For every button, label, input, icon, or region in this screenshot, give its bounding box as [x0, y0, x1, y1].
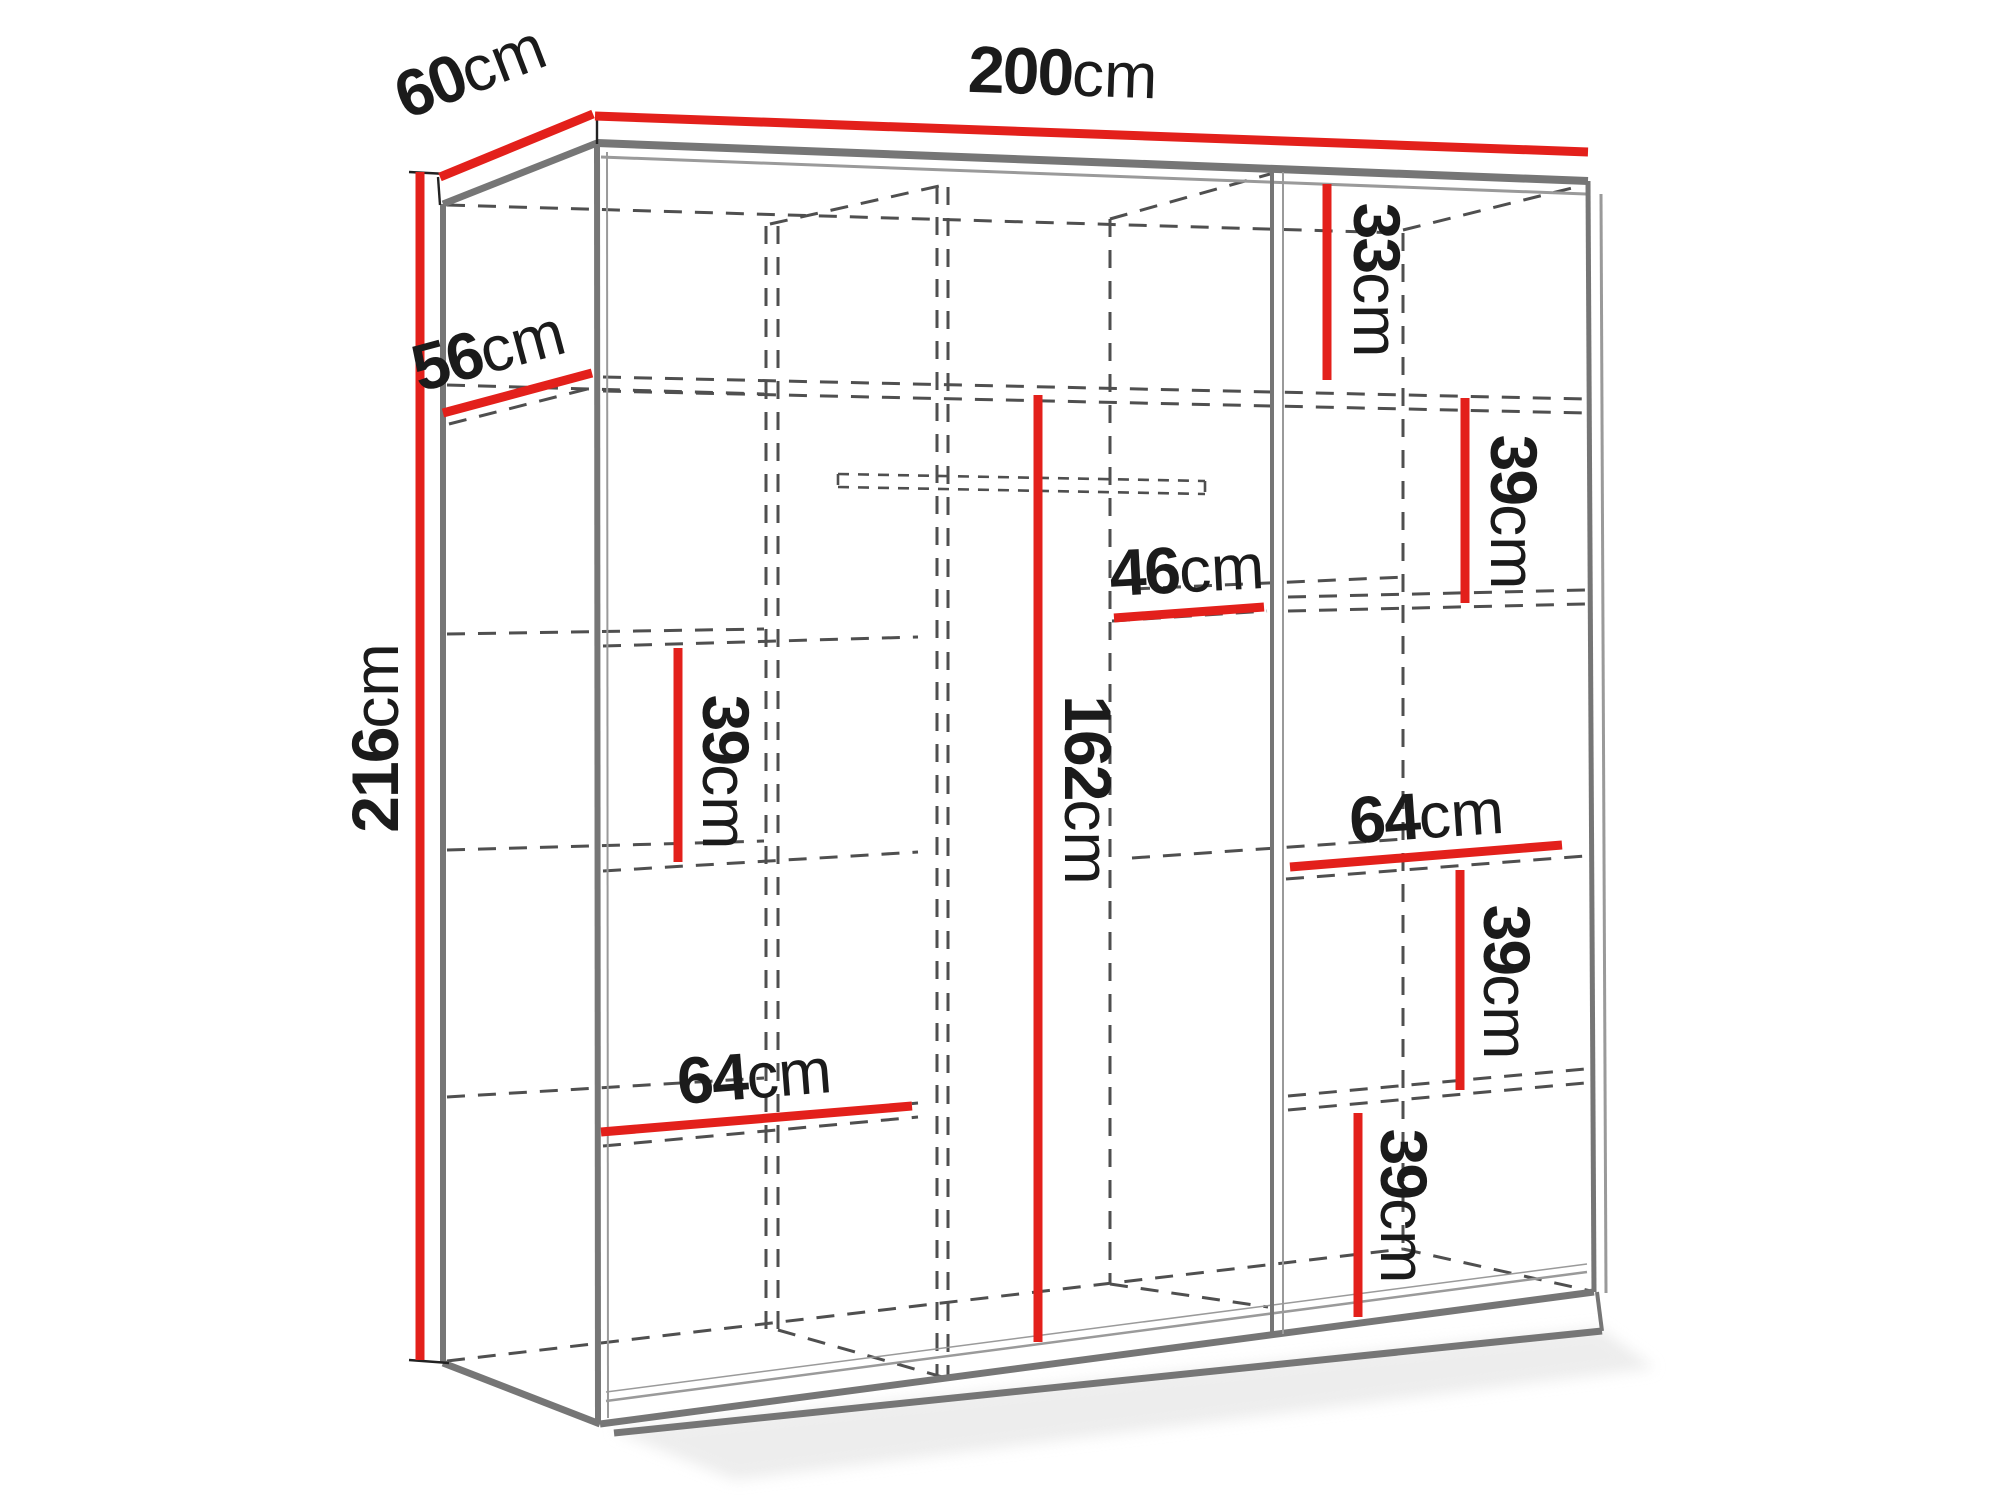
front-right-vertical-edge — [1588, 181, 1594, 1292]
left-partition-bottom-depth — [778, 1330, 946, 1378]
diagram-canvas: 200cm 60cm 216cm 56cm 39cm 64cm 162cm 46… — [0, 0, 2000, 1500]
right-shelf-b-front-1 — [1288, 590, 1585, 597]
mid-partition-bottom-depth — [1110, 1284, 1268, 1307]
left-shelf3-front — [603, 852, 918, 871]
left-shelf2-front — [603, 637, 918, 646]
dim-label-left-shelf: 64cm — [674, 1032, 834, 1118]
top-left-depth-edge — [443, 143, 597, 204]
left-shelf2-back — [447, 629, 764, 634]
back-top-edge — [447, 205, 1403, 233]
front-right-outer-edge — [1601, 194, 1606, 1293]
top-shelf-front-2 — [603, 391, 1585, 413]
dim-label-hanging-width: 46cm — [1108, 528, 1266, 610]
right-shelf-b-front-2 — [1288, 604, 1585, 611]
wardrobe-dimension-diagram: 200cm 60cm 216cm 56cm 39cm 64cm 162cm 46… — [0, 0, 2000, 1500]
front-left-vertical-edge — [597, 143, 598, 1424]
dim-label-hanging-height: 162cm — [1051, 695, 1125, 884]
left-bottom-depth-edge — [443, 1363, 600, 1424]
hanging-rail — [838, 474, 1205, 494]
dimension-ticks — [409, 114, 597, 1363]
dim-label-right-gap-upper: 39cm — [1477, 435, 1551, 590]
dim-label-right-gap-mid: 39cm — [1470, 905, 1544, 1060]
dim-label-right-top-gap: 33cm — [1340, 203, 1414, 358]
right-shelf-d-front-2 — [1288, 1083, 1585, 1110]
dim-label-width: 200cm — [967, 32, 1159, 113]
dim-label-right-gap-low: 39cm — [1367, 1129, 1441, 1284]
back-bottom-edge — [447, 1249, 1403, 1361]
dim-label-right-shelf: 64cm — [1347, 773, 1507, 858]
plinth-right-edge — [1597, 1292, 1602, 1331]
top-shelf-back — [447, 385, 764, 394]
dim-line-depth-60 — [440, 114, 593, 177]
front-left-inner-edge — [607, 152, 608, 1418]
top-shelf-front-1 — [603, 377, 1585, 399]
dim-label-left-gap: 39cm — [689, 695, 763, 850]
dim-label-depth: 60cm — [384, 8, 555, 133]
right-shelf-d-front-1 — [1288, 1069, 1585, 1096]
dim-label-height: 216cm — [338, 643, 412, 832]
